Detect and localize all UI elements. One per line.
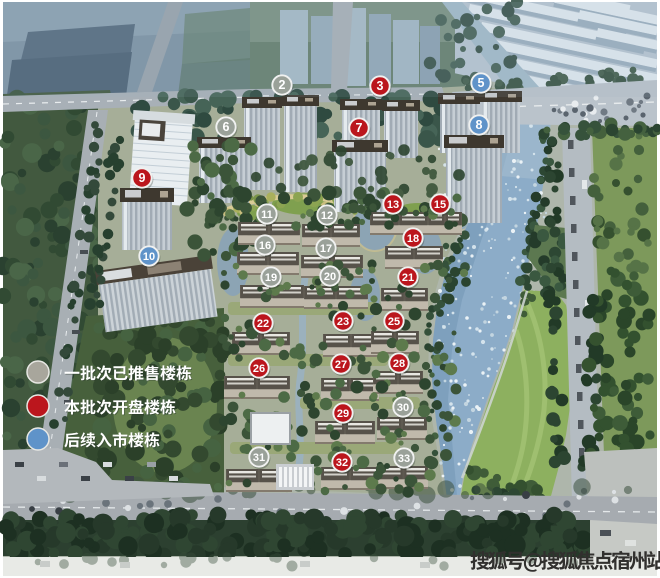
svg-text:3: 3 (377, 79, 384, 93)
svg-text:23: 23 (337, 316, 349, 328)
svg-text:25: 25 (388, 316, 400, 328)
svg-text:29: 29 (337, 408, 349, 420)
svg-text:21: 21 (402, 272, 414, 284)
svg-text:33: 33 (398, 453, 410, 465)
svg-text:10: 10 (143, 251, 155, 263)
svg-text:7: 7 (356, 121, 363, 135)
svg-text:2: 2 (279, 78, 286, 92)
svg-text:13: 13 (387, 199, 399, 211)
svg-text:30: 30 (397, 402, 409, 414)
svg-text:27: 27 (335, 359, 347, 371)
svg-text:32: 32 (336, 457, 348, 469)
svg-text:5: 5 (478, 76, 485, 90)
svg-text:8: 8 (476, 118, 483, 132)
svg-text:16: 16 (259, 240, 271, 252)
svg-text:26: 26 (253, 363, 265, 375)
svg-text:19: 19 (265, 272, 277, 284)
svg-text:18: 18 (407, 233, 419, 245)
svg-text:11: 11 (261, 209, 273, 221)
svg-text:17: 17 (320, 243, 332, 255)
svg-text:15: 15 (434, 199, 446, 211)
svg-text:9: 9 (139, 171, 146, 185)
svg-text:20: 20 (324, 271, 336, 283)
svg-text:12: 12 (321, 210, 333, 222)
svg-text:22: 22 (257, 318, 269, 330)
svg-text:31: 31 (253, 452, 265, 464)
svg-text:6: 6 (223, 120, 230, 134)
svg-text:28: 28 (393, 358, 405, 370)
